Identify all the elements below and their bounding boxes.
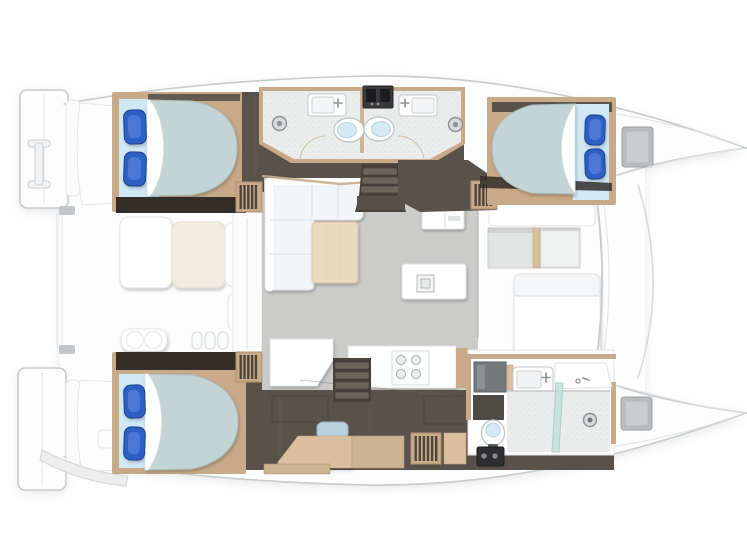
right-toilet — [364, 117, 394, 141]
bow-hatch-starboard — [621, 397, 652, 430]
owner-companionway-stairs — [236, 352, 262, 382]
left-toilet — [334, 118, 364, 142]
burner — [397, 370, 406, 379]
island-sink — [421, 279, 430, 288]
owner-bathroom — [466, 350, 616, 466]
cockpit-table — [172, 222, 225, 288]
burner — [412, 370, 421, 379]
burner — [397, 356, 406, 365]
floor-plan-page — [0, 0, 747, 560]
right-head-sink — [399, 95, 437, 116]
owner-aft-cabin — [112, 352, 246, 474]
locker-end — [444, 433, 466, 464]
owner-shower — [507, 383, 610, 452]
dark-counter — [473, 395, 504, 420]
forward-seating-unit — [514, 274, 600, 356]
laundry-unit — [363, 86, 393, 108]
right-shower-head — [449, 118, 463, 132]
catamaran-floor-plan — [0, 0, 747, 560]
burner — [412, 356, 421, 365]
cleat — [59, 206, 75, 215]
port-transom-seat — [77, 103, 117, 205]
mirror-cabinet — [474, 362, 506, 392]
bow-hatch-port — [622, 127, 653, 167]
owner-desk-top — [352, 436, 404, 468]
footwell-step — [541, 231, 579, 267]
cleat — [59, 345, 75, 354]
bathroom-left-wall — [466, 358, 471, 420]
coffee-table — [312, 222, 358, 283]
helm-seat — [121, 329, 167, 351]
port-hull-interior — [112, 86, 745, 213]
starboard-transom-seat — [77, 380, 117, 472]
water-heater-unit — [477, 447, 504, 466]
left-head-sink — [308, 94, 346, 116]
port-aft-stairs — [236, 182, 262, 212]
bathroom-right-wall — [611, 382, 616, 444]
winch-handles — [192, 332, 228, 349]
cabin-fwd-wall — [116, 352, 246, 370]
bathroom-top-trim — [466, 354, 616, 359]
forward-lounge-backrest — [489, 204, 595, 226]
left-shower-head — [273, 117, 287, 131]
cooktop — [392, 351, 429, 385]
cockpit-bench-port — [120, 217, 172, 288]
owner-sink — [513, 367, 553, 392]
angled-counter — [555, 363, 612, 389]
galley-island — [402, 264, 466, 299]
footwell-divider — [533, 228, 540, 268]
salon-to-owner-steps — [333, 358, 371, 402]
slatted-locker — [411, 433, 441, 464]
cabin-aft-wall — [116, 197, 246, 213]
sink-wood-trim — [507, 365, 513, 392]
side-shelf — [264, 464, 330, 474]
